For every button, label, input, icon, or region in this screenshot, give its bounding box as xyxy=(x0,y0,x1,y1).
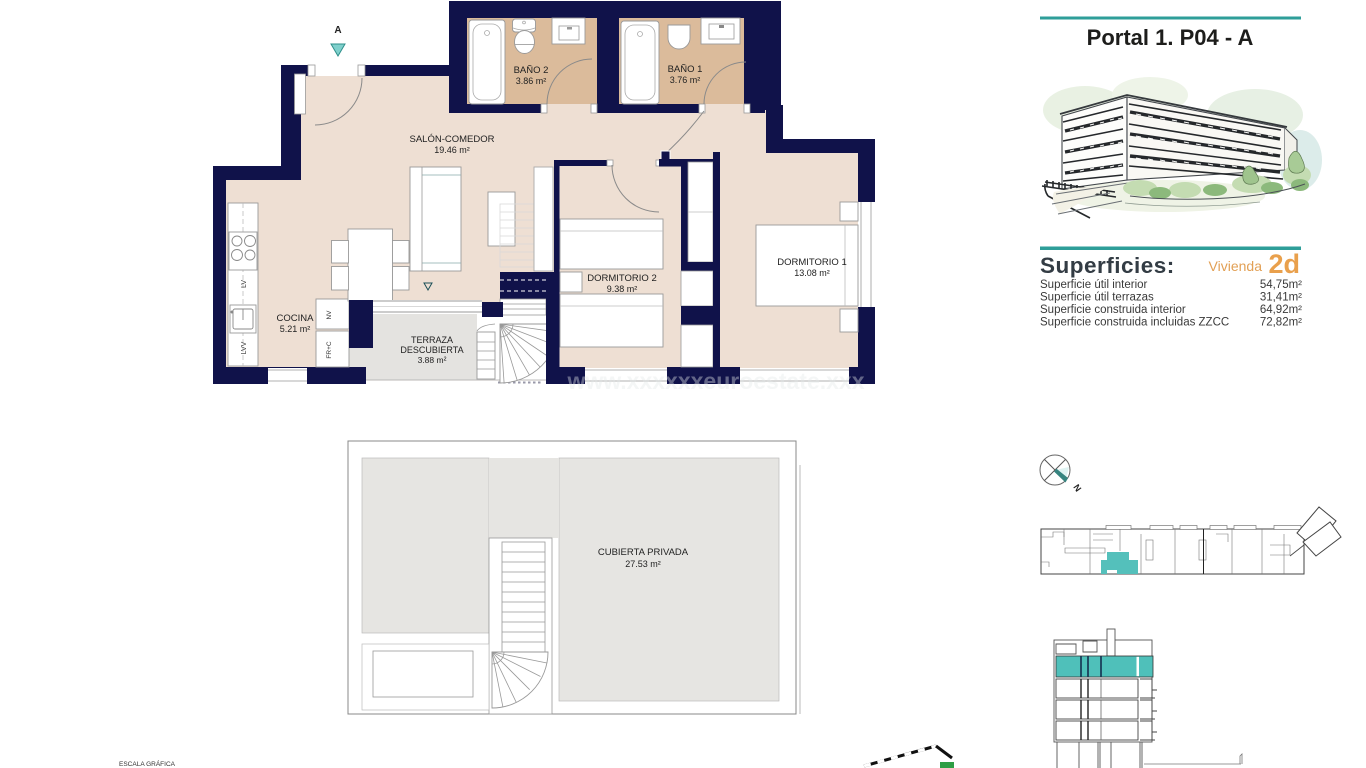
svg-text:9.38 m²: 9.38 m² xyxy=(607,284,638,294)
svg-text:CUBIERTA PRIVADA: CUBIERTA PRIVADA xyxy=(598,547,689,558)
svg-text:SALÓN-COMEDOR: SALÓN-COMEDOR xyxy=(410,134,495,145)
svg-text:DORMITORIO 1: DORMITORIO 1 xyxy=(777,257,847,268)
svg-text:31,41m²: 31,41m² xyxy=(1260,292,1302,304)
svg-text:3.76 m²: 3.76 m² xyxy=(670,75,701,85)
svg-text:5.21 m²: 5.21 m² xyxy=(280,324,311,334)
svg-text:LV: LV xyxy=(241,280,248,288)
svg-text:FR+C: FR+C xyxy=(326,341,333,358)
svg-text:Superficie útil terrazas: Superficie útil terrazas xyxy=(1040,292,1154,304)
svg-text:COCINA: COCINA xyxy=(277,313,315,324)
svg-text:54,75m²: 54,75m² xyxy=(1260,279,1302,291)
svg-text:Superficie construida incluida: Superficie construida incluidas ZZCC xyxy=(1040,317,1229,329)
svg-text:Superficie construida interior: Superficie construida interior xyxy=(1040,304,1186,316)
svg-text:64,92m²: 64,92m² xyxy=(1260,304,1302,316)
svg-text:DORMITORIO 2: DORMITORIO 2 xyxy=(587,273,657,284)
svg-text:27.53 m²: 27.53 m² xyxy=(625,559,661,569)
svg-text:Superficies:: Superficies: xyxy=(1040,253,1175,278)
svg-text:Vivienda: Vivienda xyxy=(1209,258,1263,274)
svg-text:Superficie útil interior: Superficie útil interior xyxy=(1040,279,1148,291)
svg-text:BAÑO 1: BAÑO 1 xyxy=(668,64,703,75)
svg-text:A: A xyxy=(334,25,341,36)
svg-text:3.86 m²: 3.86 m² xyxy=(516,76,547,86)
svg-text:www.xxxxxxeuroestate.xxx: www.xxxxxxeuroestate.xxx xyxy=(566,368,864,394)
svg-text:13.08 m²: 13.08 m² xyxy=(794,268,830,278)
svg-text:NV: NV xyxy=(326,310,333,320)
svg-text:3.88 m²: 3.88 m² xyxy=(418,355,447,365)
svg-text:BAÑO 2: BAÑO 2 xyxy=(514,65,549,76)
svg-text:N: N xyxy=(1071,482,1083,493)
svg-text:TERRAZA: TERRAZA xyxy=(411,335,453,345)
svg-text:72,82m²: 72,82m² xyxy=(1260,317,1302,329)
svg-text:2d: 2d xyxy=(1268,249,1300,279)
svg-text:ESCALA GRÁFICA: ESCALA GRÁFICA xyxy=(119,759,176,768)
svg-text:DESCUBIERTA: DESCUBIERTA xyxy=(400,345,463,355)
svg-text:LVV: LVV xyxy=(241,341,248,354)
svg-text:19.46 m²: 19.46 m² xyxy=(434,145,470,155)
svg-text:Portal 1. P04 - A: Portal 1. P04 - A xyxy=(1087,25,1254,50)
